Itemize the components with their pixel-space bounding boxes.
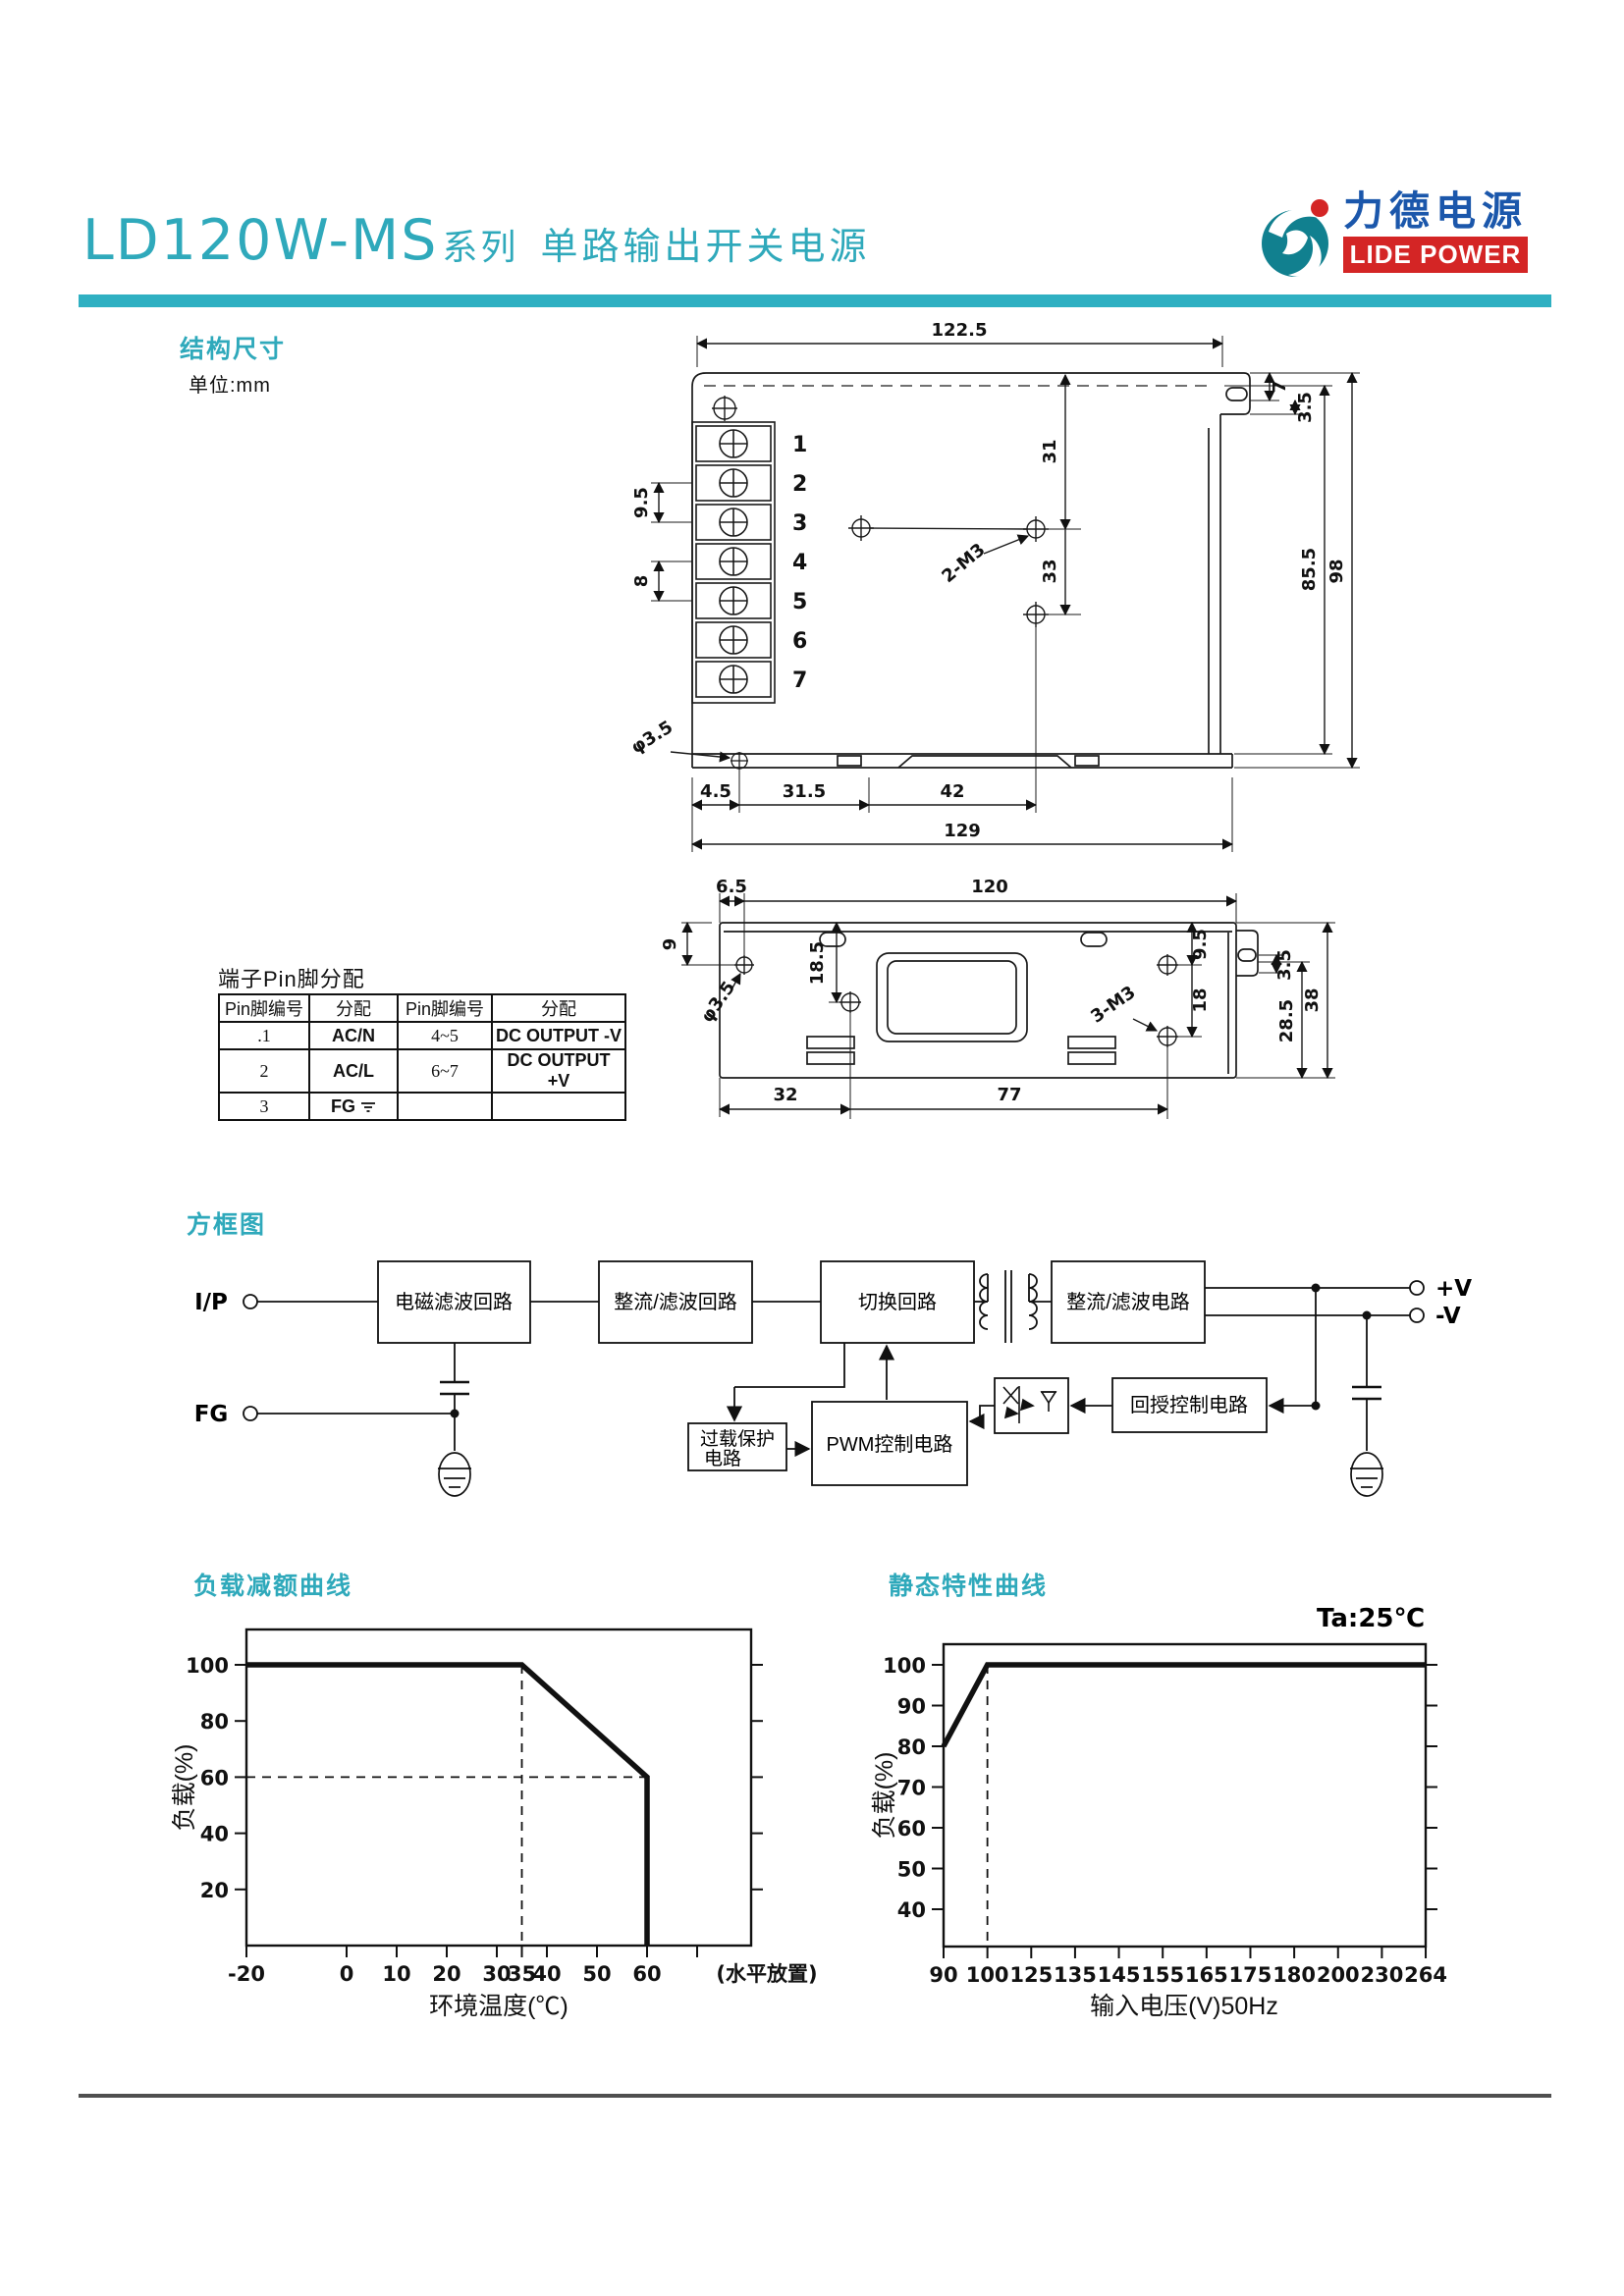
capacitor-output	[1352, 1387, 1381, 1399]
x-tick-label: 50	[582, 1962, 611, 1986]
x-tick-label: 40	[532, 1962, 561, 1986]
x-axis-title: 环境温度(℃)	[429, 1993, 568, 2020]
company-logo: 力德电源 LIDE POWER	[1259, 188, 1528, 289]
extension-lines	[651, 336, 1360, 852]
col-header: Pin脚编号	[398, 994, 492, 1022]
capacitor-fg	[440, 1382, 469, 1394]
label-2-m3: 2-M3	[938, 540, 989, 588]
table-row: 3 FG	[219, 1093, 625, 1120]
pin-number	[398, 1093, 492, 1120]
x-tick-label: 20	[432, 1962, 460, 1986]
dim-31-5: 31.5	[783, 781, 826, 802]
y-tick-label: 70	[897, 1777, 926, 1800]
label-hole-dia: φ3.5	[697, 978, 740, 1027]
x-tick-label: 10	[382, 1962, 410, 1986]
dim-9-5: 9.5	[631, 487, 652, 518]
pin-assignment: AC/N	[309, 1022, 398, 1049]
page-title: LD120W-MS系列单路输出开关电源	[82, 208, 870, 273]
vminus-label: -V	[1435, 1304, 1461, 1329]
x-tick-label: 125	[1009, 1963, 1053, 1987]
data-curve	[944, 1665, 1426, 1746]
x-tick-label: 200	[1317, 1963, 1360, 1987]
block-overload-line2: 电路	[704, 1448, 741, 1469]
table-row: .1 AC/N 4~5 DC OUTPUT -V	[219, 1022, 625, 1049]
dim-18-5: 18.5	[807, 941, 828, 985]
terminal-number: 4	[792, 551, 807, 575]
series-suffix: 系列	[442, 219, 518, 270]
derating-chart: 20406080100-20010203035405060(水平放置)环境温度(…	[172, 1571, 825, 2066]
terminal-block	[692, 422, 775, 703]
dim-9: 9	[660, 938, 680, 951]
block-rectifier-filter-out: 整流/滤波电路	[1066, 1291, 1190, 1313]
dim-122-5: 122.5	[932, 320, 988, 341]
model-name: LD120W-MS	[82, 208, 438, 273]
x-tick-label: 60	[632, 1962, 661, 1986]
footer-rule	[79, 2094, 1551, 2098]
input-label: I/P	[194, 1290, 228, 1315]
x-tick-label: 264	[1404, 1963, 1447, 1987]
dim-77: 77	[997, 1085, 1021, 1105]
dim-18: 18	[1190, 988, 1211, 1012]
drawing-bottom-view: 6.5 120 9 18.5 φ3.5 9.5 18 3.5 28.5 38 3…	[550, 872, 1375, 1166]
logo-swirl-icon	[1259, 188, 1335, 289]
block-feedback: 回授控制电路	[1130, 1394, 1248, 1416]
terminal-number: 5	[792, 590, 807, 614]
dim-28-5: 28.5	[1276, 999, 1297, 1042]
pin-assignment: DC OUTPUT -V	[492, 1022, 625, 1049]
pin-number: 6~7	[398, 1049, 492, 1093]
terminal-number: 7	[792, 668, 807, 693]
optocoupler-symbol	[1003, 1386, 1056, 1423]
dim-3-5: 3.5	[1295, 392, 1316, 423]
dim-33: 33	[1040, 559, 1060, 583]
corner-screw	[712, 396, 737, 421]
dim-85-5: 85.5	[1299, 548, 1320, 591]
y-tick-label: 80	[200, 1710, 229, 1734]
pin-assignment	[492, 1093, 625, 1120]
pin-assignment-table: Pin脚编号 分配 Pin脚编号 分配 .1 AC/N 4~5 DC OUTPU…	[218, 993, 626, 1121]
y-axis-title: 负载(%)	[172, 1744, 198, 1832]
y-axis-title: 负载(%)	[871, 1752, 898, 1840]
label-hole-dia: φ3.5	[627, 717, 677, 758]
header-accent-bar	[79, 294, 1551, 307]
data-curve	[246, 1665, 647, 1946]
pin-table-title: 端子Pin脚分配	[218, 962, 365, 993]
x-tick-label: -20	[228, 1962, 265, 1986]
fg-terminal	[244, 1407, 257, 1420]
earth-ground-fg	[438, 1453, 471, 1496]
pin-assignment: FG	[309, 1093, 398, 1120]
section-structure: 结构尺寸	[180, 330, 286, 365]
pin-number: 2	[219, 1049, 309, 1093]
dim-129: 129	[944, 821, 981, 841]
pin-number: .1	[219, 1022, 309, 1049]
page-subtitle: 单路输出开关电源	[540, 216, 870, 270]
drawing-top-view: 1 2 3 4 5 6 7	[545, 314, 1375, 864]
dim-38: 38	[1302, 988, 1323, 1012]
y-tick-label: 100	[186, 1654, 229, 1678]
dim-31: 31	[1040, 439, 1060, 463]
transformer-symbol	[980, 1270, 1037, 1343]
vplus-terminal	[1410, 1281, 1424, 1295]
fg-label: FG	[194, 1402, 229, 1427]
vminus-terminal	[1410, 1308, 1424, 1322]
y-tick-label: 60	[897, 1817, 926, 1841]
dim-6-5: 6.5	[716, 877, 747, 897]
table-header-row: Pin脚编号 分配 Pin脚编号 分配	[219, 994, 625, 1022]
ground-icon	[360, 1099, 376, 1113]
static-characteristic-chart: Ta:25℃ 405060708090100901001251351451551…	[869, 1571, 1522, 2066]
label-3-m3: 3-M3	[1087, 982, 1139, 1027]
y-tick-label: 50	[897, 1858, 926, 1882]
col-header: 分配	[492, 994, 625, 1022]
plot-box	[944, 1644, 1426, 1947]
y-tick-label: 40	[200, 1823, 229, 1846]
case2-outline	[720, 923, 1258, 1078]
y-tick-label: 90	[897, 1695, 926, 1719]
x-tick-label: 135	[1054, 1963, 1097, 1987]
logo-chinese-name: 力德电源	[1343, 188, 1528, 235]
y-tick-label: 40	[897, 1898, 926, 1922]
dimension-lines	[659, 344, 1352, 844]
dim-4-5: 4.5	[700, 781, 731, 802]
datasheet-page: LD120W-MS系列单路输出开关电源 力德电源 LIDE POWER 结构尺寸…	[0, 0, 1624, 2296]
block-pwm: PWM控制电路	[827, 1433, 953, 1456]
ta-annotation: Ta:25℃	[1317, 1604, 1425, 1633]
x-tick-label: 230	[1360, 1963, 1403, 1987]
dim-7: 7	[1270, 381, 1290, 394]
unit-label: 单位:mm	[189, 369, 271, 398]
block-emi-filter: 电磁滤波回路	[395, 1291, 513, 1313]
x-axis-note: (水平放置)	[716, 1962, 817, 1986]
table-row: 2 AC/L 6~7 DC OUTPUT +V	[219, 1049, 625, 1093]
x-tick-label: 100	[966, 1963, 1009, 1987]
dim-120: 120	[971, 877, 1008, 897]
dim-32: 32	[773, 1085, 797, 1105]
dim-3-5: 3.5	[1274, 949, 1295, 981]
x-tick-label: 155	[1141, 1963, 1184, 1987]
dim-8: 8	[631, 575, 652, 588]
col-header: Pin脚编号	[219, 994, 309, 1022]
x-axis-title: 输入电压(V)50Hz	[1090, 1993, 1278, 2020]
y-tick-label: 80	[897, 1735, 926, 1759]
x-tick-label: 145	[1098, 1963, 1141, 1987]
plot-box	[246, 1629, 751, 1946]
earth-ground-output	[1350, 1453, 1383, 1496]
x-tick-label: 175	[1229, 1963, 1272, 1987]
y-tick-label: 60	[200, 1766, 229, 1789]
block-switching: 切换回路	[858, 1291, 937, 1313]
terminal-number: 3	[792, 511, 807, 536]
terminal-number: 2	[792, 472, 807, 497]
ip-terminal	[244, 1295, 257, 1308]
logo-dot	[1311, 199, 1328, 217]
x-tick-label: 90	[929, 1963, 957, 1987]
pin-assignment: AC/L	[309, 1049, 398, 1093]
pin-number: 4~5	[398, 1022, 492, 1049]
x-tick-label: 165	[1185, 1963, 1228, 1987]
y-tick-label: 100	[883, 1654, 926, 1678]
terminal-number: 1	[792, 433, 807, 457]
logo-english-name: LIDE POWER	[1343, 237, 1528, 273]
col-header: 分配	[309, 994, 398, 1022]
x-tick-label: 180	[1272, 1963, 1316, 1987]
pin-number: 3	[219, 1093, 309, 1120]
dim-98: 98	[1326, 559, 1347, 583]
block-overload-line1: 过载保护	[700, 1428, 775, 1450]
block-rectifier-filter-in: 整流/滤波回路	[614, 1291, 737, 1313]
pin-assignment: DC OUTPUT +V	[492, 1049, 625, 1093]
vplus-label: +V	[1435, 1276, 1472, 1302]
terminal-number: 6	[792, 629, 807, 654]
y-tick-label: 20	[200, 1879, 229, 1902]
dim-9-5: 9.5	[1190, 929, 1211, 960]
x-tick-label: 0	[340, 1962, 354, 1986]
dim-42: 42	[940, 781, 964, 802]
